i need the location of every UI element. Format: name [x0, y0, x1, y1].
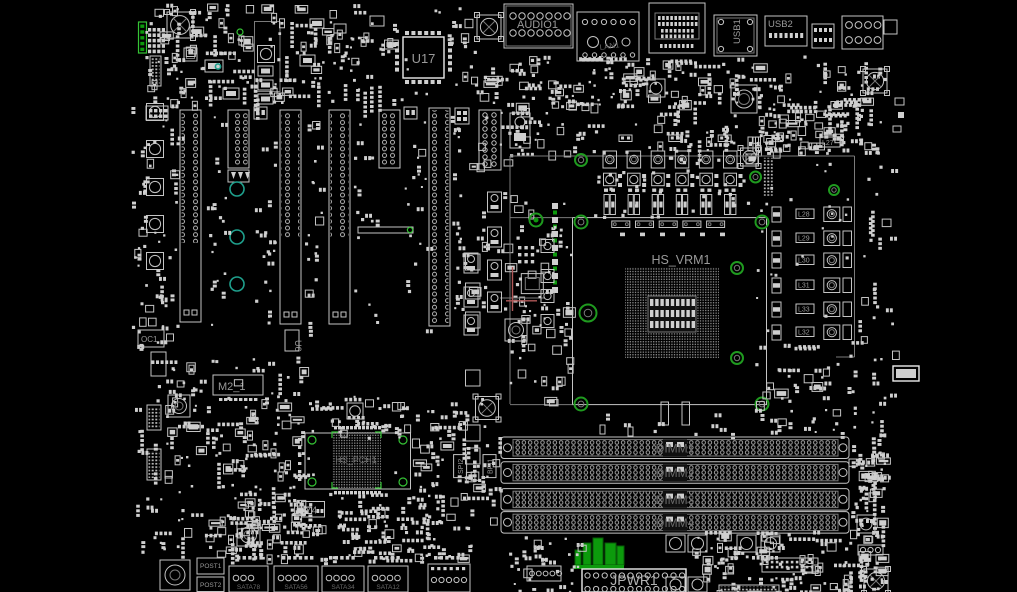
svg-text:DIMM3: DIMM3 — [656, 493, 695, 507]
svg-text:M2_1: M2_1 — [218, 381, 246, 393]
svg-text:DIMM1: DIMM1 — [656, 441, 695, 455]
svg-text:JPWR1: JPWR1 — [610, 572, 658, 588]
svg-text:SPI2: SPI2 — [458, 459, 465, 474]
svg-text:U17: U17 — [412, 51, 436, 66]
svg-text:DIMM4: DIMM4 — [656, 516, 695, 530]
svg-text:SATA34: SATA34 — [331, 584, 355, 591]
svg-text:SATA78: SATA78 — [237, 584, 261, 591]
svg-text:L32: L32 — [798, 330, 810, 337]
svg-text:SATA56: SATA56 — [284, 584, 308, 591]
svg-text:POST1: POST1 — [200, 563, 222, 570]
svg-text:L29: L29 — [798, 236, 810, 243]
svg-text:AUDIO1: AUDIO1 — [517, 19, 558, 31]
svg-text:HS_PCH1: HS_PCH1 — [335, 455, 377, 465]
svg-text:U6: U6 — [293, 340, 303, 352]
svg-text:HS_VRM1: HS_VRM1 — [651, 253, 710, 267]
svg-text:L28: L28 — [798, 212, 810, 219]
svg-text:SATA12: SATA12 — [376, 584, 400, 591]
svg-text:POST2: POST2 — [200, 582, 222, 589]
svg-text:L31: L31 — [798, 283, 810, 290]
svg-text:BPI1: BPI1 — [488, 459, 495, 474]
svg-text:L33: L33 — [798, 307, 810, 314]
svg-text:DIMM2: DIMM2 — [656, 466, 695, 480]
svg-text:L27: L27 — [822, 140, 834, 147]
svg-text:L30: L30 — [798, 258, 810, 265]
svg-text:OC1: OC1 — [141, 335, 158, 344]
svg-text:USB2: USB2 — [768, 19, 793, 30]
svg-text:USB1: USB1 — [732, 19, 743, 44]
